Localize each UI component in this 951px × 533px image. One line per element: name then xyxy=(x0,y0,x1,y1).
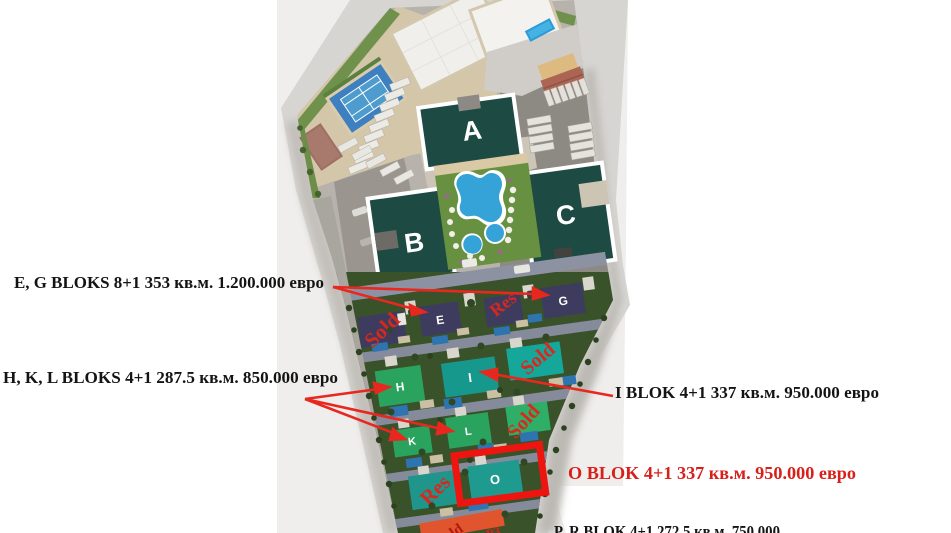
svg-text:O: O xyxy=(489,471,501,487)
svg-text:I BLOK 4+1 337 кв.м. 950.000: I BLOK 4+1 337 кв.м. 950.000 евро xyxy=(615,383,879,402)
svg-text:A: A xyxy=(460,115,483,147)
svg-text:C: C xyxy=(554,199,577,231)
svg-text:E, G BLOKS 8+1 353 кв.м. 1.200: E, G BLOKS 8+1 353 кв.м. 1.200.000 евро xyxy=(14,273,324,292)
svg-text:O BLOK 4+1 337 кв.м. 950.000: O BLOK 4+1 337 кв.м. 950.000 евро xyxy=(568,463,856,483)
svg-text:G: G xyxy=(558,293,569,308)
svg-text:P, R BLOK 4+1 272.5 кв.м. 750: P, R BLOK 4+1 272.5 кв.м. 750.000 xyxy=(554,522,780,533)
svg-text:B: B xyxy=(402,226,425,258)
svg-text:H, K, L BLOKS 4+1 287.5 кв.м.: H, K, L BLOKS 4+1 287.5 кв.м. 850.000 ев… xyxy=(3,368,338,387)
svg-text:K: K xyxy=(407,435,417,448)
